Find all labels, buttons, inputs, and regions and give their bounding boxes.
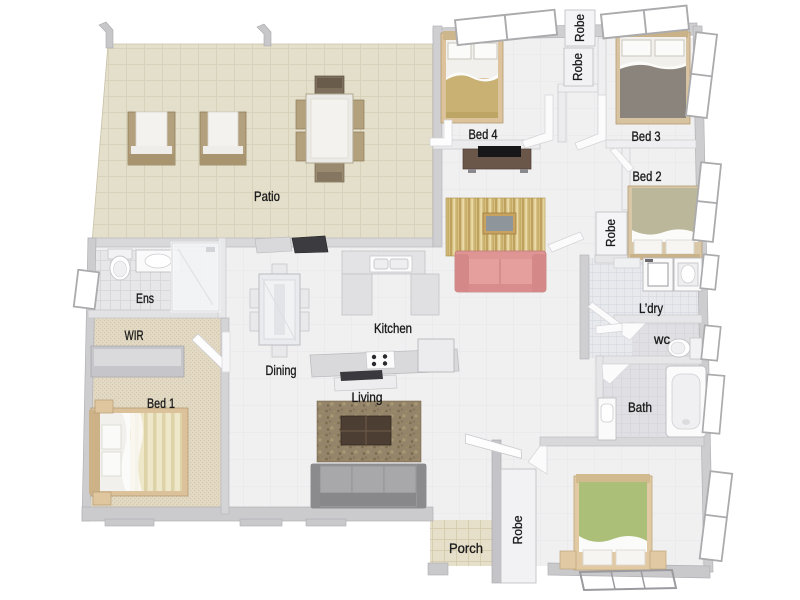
svg-text:Porch: Porch xyxy=(449,540,483,556)
svg-text:Bath: Bath xyxy=(628,399,652,415)
svg-text:Patio: Patio xyxy=(254,188,280,204)
svg-text:Kitchen: Kitchen xyxy=(374,320,412,336)
svg-text:Ens: Ens xyxy=(136,290,154,306)
svg-text:WIR: WIR xyxy=(125,327,144,343)
svg-text:Robe: Robe xyxy=(573,14,587,42)
svg-text:Robe: Robe xyxy=(511,515,525,544)
svg-text:Dining: Dining xyxy=(266,362,297,378)
svg-text:Bed 1: Bed 1 xyxy=(147,395,175,411)
svg-text:Bed 4: Bed 4 xyxy=(469,126,498,142)
svg-text:Bed 2: Bed 2 xyxy=(633,168,662,184)
svg-text:Living: Living xyxy=(352,389,383,405)
svg-text:Robe: Robe xyxy=(571,53,585,81)
svg-text:Robe: Robe xyxy=(604,219,618,247)
svg-text:wc: wc xyxy=(653,331,670,347)
svg-text:Bed 3: Bed 3 xyxy=(632,128,661,144)
svg-text:L’dry: L’dry xyxy=(639,300,663,316)
